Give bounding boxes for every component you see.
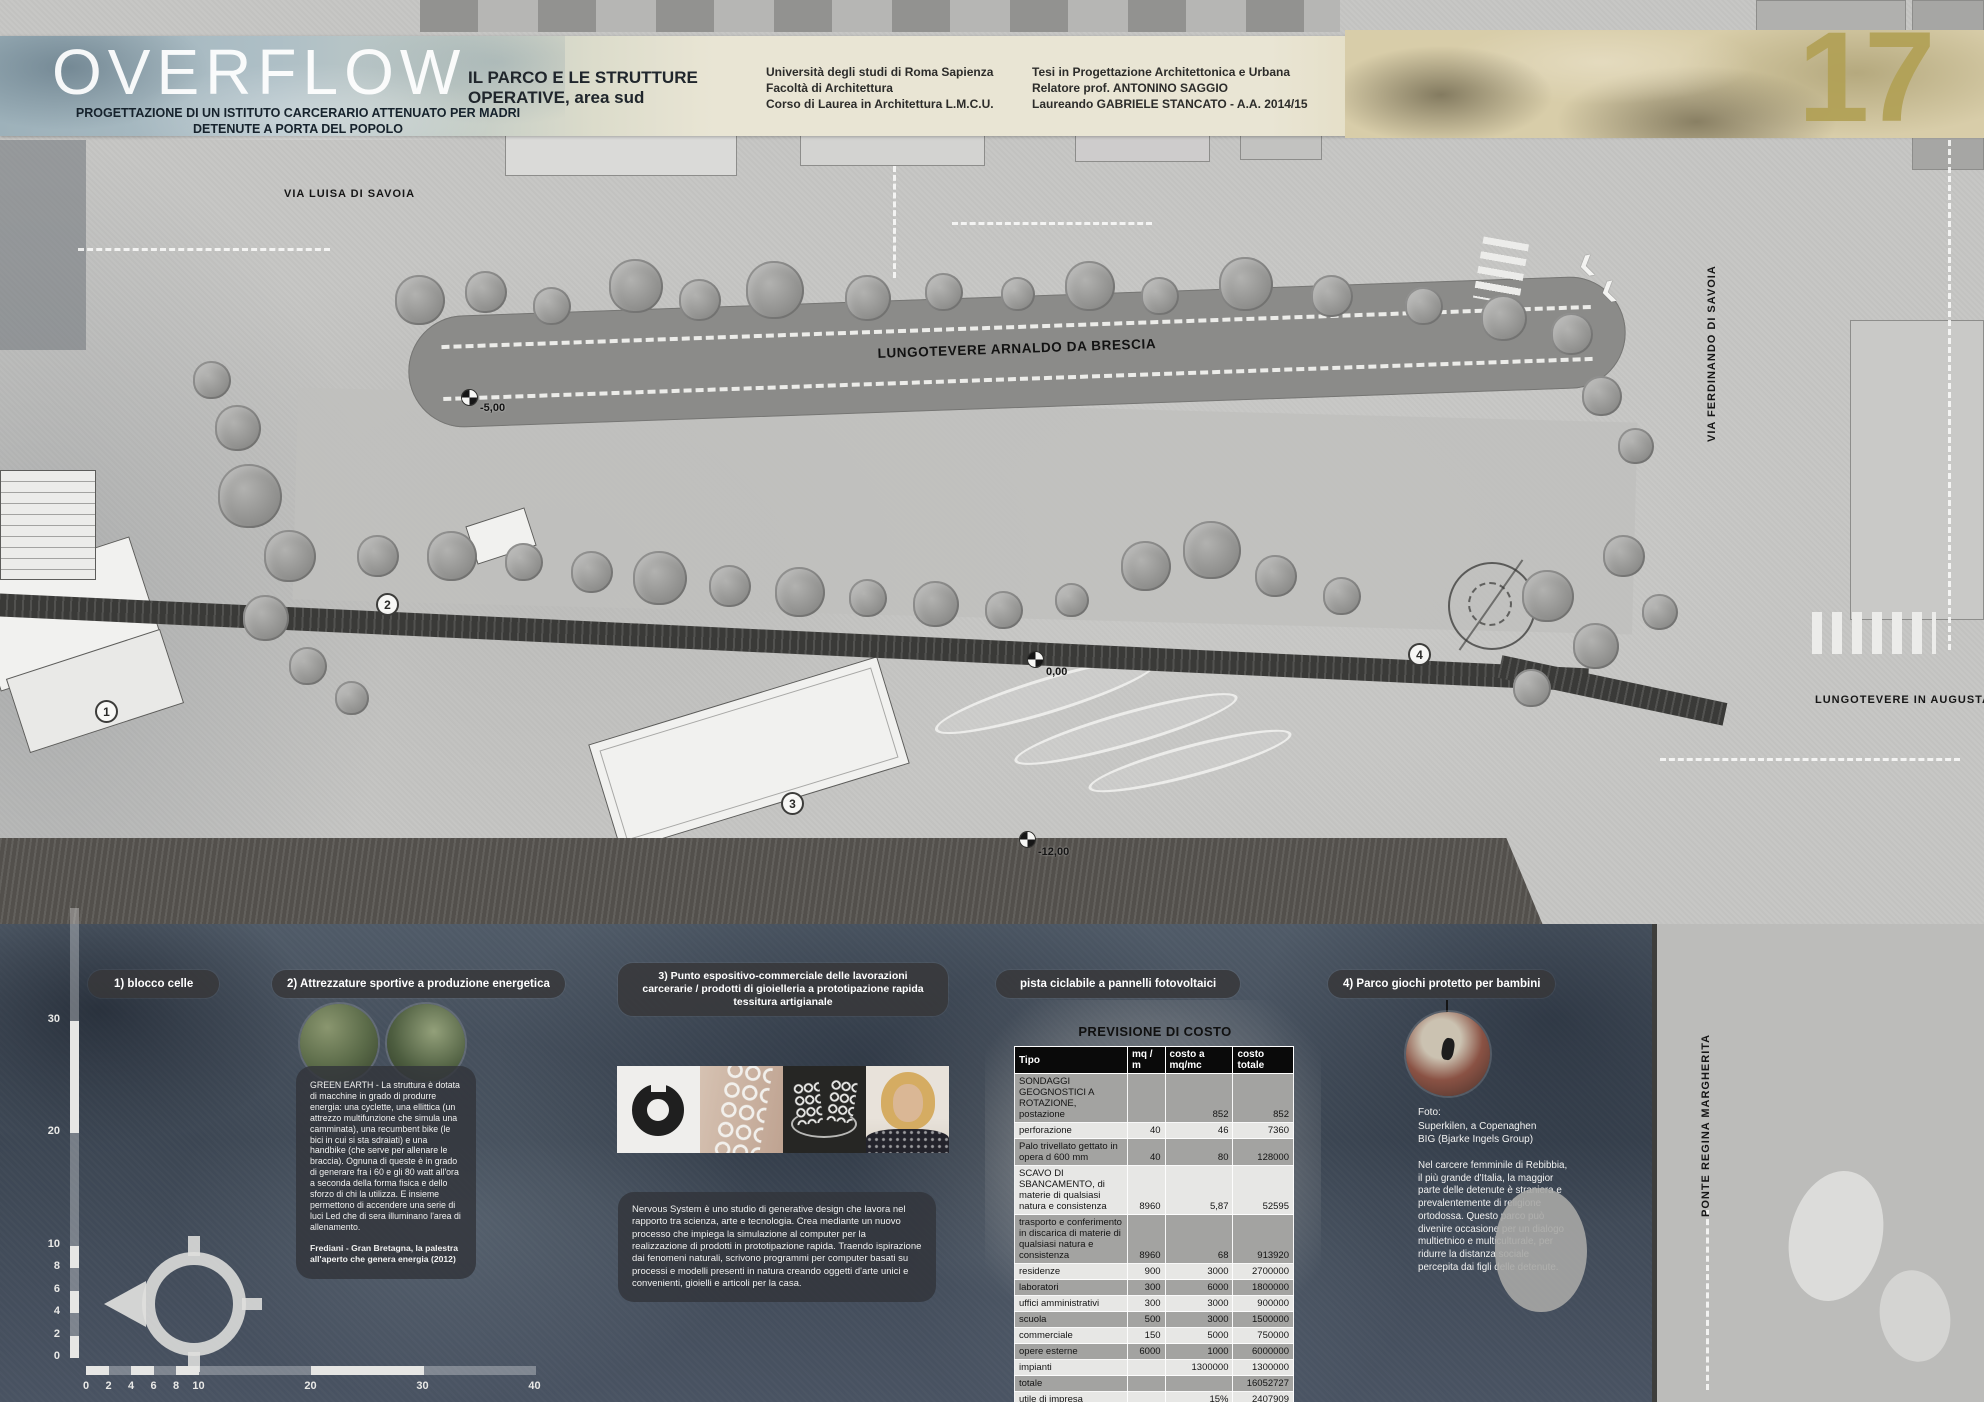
cost-table-cell: 6000 xyxy=(1165,1280,1233,1296)
scale-bar-segment xyxy=(424,1366,537,1375)
cost-table-cell: 40 xyxy=(1128,1123,1166,1139)
university-credits: Università degli studi di Roma Sapienza … xyxy=(766,64,994,113)
lane-marking xyxy=(1706,1210,1709,1390)
street-label-ponte-regina: PONTE REGINA MARGHERITA xyxy=(1700,1002,1712,1217)
cost-table-row: SONDAGGI GEOGNOSTICI A ROTAZIONE, postaz… xyxy=(1015,1074,1294,1123)
tree xyxy=(633,551,687,605)
lane-marking xyxy=(893,166,896,278)
plan-number-marker: 1 xyxy=(95,700,118,723)
cost-table-cell: uffici amministrativi xyxy=(1015,1296,1128,1312)
tree xyxy=(1522,570,1574,622)
tree xyxy=(849,579,887,617)
photo-credit-line: Foto: xyxy=(1418,1106,1536,1120)
cost-table-cell xyxy=(1165,1376,1233,1392)
cost-table-cell: 6000 xyxy=(1128,1344,1166,1360)
tree xyxy=(985,591,1023,629)
cost-table-cell: 300 xyxy=(1128,1280,1166,1296)
scale-bar-segment xyxy=(70,1291,79,1314)
cost-table-cell: SCAVO DI SBANCAMENTO, di materie di qual… xyxy=(1015,1166,1128,1215)
plan-number-marker: 4 xyxy=(1408,643,1431,666)
cost-table-cell: 5,87 xyxy=(1165,1166,1233,1215)
board-title: OVERFLOW xyxy=(52,40,466,104)
lane-marking xyxy=(1660,758,1960,761)
portrait-face xyxy=(893,1084,923,1122)
tree xyxy=(1513,669,1551,707)
cost-table-column-header: costo a mq/mc xyxy=(1165,1047,1233,1074)
tree xyxy=(925,273,963,311)
tree xyxy=(913,581,959,627)
photo-credit: Foto: Superkilen, a Copenaghen BIG (Bjar… xyxy=(1418,1106,1536,1147)
green-earth-credit: Frediani - Gran Bretagna, la palestra al… xyxy=(310,1243,462,1265)
cost-table-cell: 1000 xyxy=(1165,1344,1233,1360)
university-line: Università degli studi di Roma Sapienza xyxy=(766,64,994,80)
tree xyxy=(1001,277,1035,311)
cost-table-column-header: mq / m xyxy=(1128,1047,1166,1074)
scale-bar-segment xyxy=(176,1366,199,1375)
photo-silver-cuffs xyxy=(783,1066,866,1153)
scale-bar-segment xyxy=(154,1366,177,1375)
scale-bar-segment xyxy=(70,1021,79,1134)
elevation-marker-icon xyxy=(1028,652,1043,667)
cost-table-cell: 3000 xyxy=(1165,1296,1233,1312)
elevation-label: -12,00 xyxy=(1038,846,1069,858)
stairs xyxy=(0,470,96,580)
section-title-line1: IL PARCO E LE STRUTTURE xyxy=(468,68,698,88)
elevation-marker-icon xyxy=(462,390,477,405)
tree xyxy=(335,681,369,715)
thesis-line: Tesi in Progettazione Architettonica e U… xyxy=(1032,64,1308,80)
crosswalk xyxy=(1812,612,1936,654)
cost-table-row: SCAVO DI SBANCAMENTO, di materie di qual… xyxy=(1015,1166,1294,1215)
scale-label-v: 0 xyxy=(54,1350,60,1362)
cost-table-row: Palo trivellato gettato in opera d 600 m… xyxy=(1015,1139,1294,1166)
cost-table-row: scuola50030001500000 xyxy=(1015,1312,1294,1328)
photo-white-bracelet xyxy=(700,1066,783,1153)
cost-table-cell: 3000 xyxy=(1165,1312,1233,1328)
portrait-collar xyxy=(866,1129,949,1153)
scale-label-v: 2 xyxy=(54,1328,60,1340)
scale-bar-segment xyxy=(70,1268,79,1291)
cost-table-cell: 750000 xyxy=(1233,1328,1294,1344)
cost-table-cell: 8960 xyxy=(1128,1166,1166,1215)
cost-table-cell: totale xyxy=(1015,1376,1128,1392)
tree xyxy=(1121,541,1171,591)
cost-table-cell: perforazione xyxy=(1015,1123,1128,1139)
tree xyxy=(289,647,327,685)
thesis-line: Relatore prof. ANTONINO SAGGIO xyxy=(1032,80,1308,96)
scale-label-v: 20 xyxy=(48,1125,60,1137)
nervous-system-panel: Nervous System è uno studio di generativ… xyxy=(618,1192,936,1302)
cost-table-cell: 852 xyxy=(1233,1074,1294,1123)
photo-figure xyxy=(1440,1037,1456,1061)
compass-arrow-west xyxy=(104,1281,146,1327)
building-band xyxy=(0,838,1545,930)
university-line: Facoltà di Architettura xyxy=(766,80,994,96)
cost-table-row: residenze90030002700000 xyxy=(1015,1264,1294,1280)
cost-table-cell: 2407909 xyxy=(1233,1392,1294,1402)
scale-label-v: 30 xyxy=(48,1013,60,1025)
plan-number-marker: 2 xyxy=(376,593,399,616)
jewelry-photo-strip xyxy=(617,1066,949,1153)
tree xyxy=(1183,521,1241,579)
compass-tick-east xyxy=(242,1298,262,1310)
necklace-opening xyxy=(651,1076,666,1092)
cost-table-header-row: Tipomq / mcosto a mq/mccosto totale xyxy=(1015,1047,1294,1074)
tree xyxy=(1323,577,1361,615)
cost-table-cell: 852 xyxy=(1165,1074,1233,1123)
cost-table-cell: 1800000 xyxy=(1233,1280,1294,1296)
building xyxy=(0,140,86,350)
callout-pill-attrezzature: 2) Attrezzature sportive a produzione en… xyxy=(272,970,565,998)
tree xyxy=(264,530,316,582)
cost-table-row: commerciale1505000750000 xyxy=(1015,1328,1294,1344)
cost-table-cell: 128000 xyxy=(1233,1139,1294,1166)
scale-label-v: 8 xyxy=(54,1260,60,1272)
cost-table-cell: 3000 xyxy=(1165,1264,1233,1280)
photo-credit-line: Superkilen, a Copenaghen xyxy=(1418,1120,1536,1134)
tree xyxy=(1573,623,1619,669)
cost-table-row: utile di impresa15%2407909 xyxy=(1015,1392,1294,1402)
scale-label-h: 2 xyxy=(105,1380,111,1392)
lane-marking xyxy=(952,222,1152,225)
cost-table-cell: SONDAGGI GEOGNOSTICI A ROTAZIONE, postaz… xyxy=(1015,1074,1128,1123)
cost-table: Tipomq / mcosto a mq/mccosto totale SOND… xyxy=(1014,1046,1294,1402)
cost-table-column-header: costo totale xyxy=(1233,1047,1294,1074)
cost-table-cell: 900000 xyxy=(1233,1296,1294,1312)
cost-table-cell: 500 xyxy=(1128,1312,1166,1328)
cost-table-row: trasporto e conferimento in discarica di… xyxy=(1015,1215,1294,1264)
tree xyxy=(1603,535,1645,577)
tree xyxy=(427,531,477,581)
scale-label-v: 6 xyxy=(54,1283,60,1295)
cost-table-cell: 16052727 xyxy=(1233,1376,1294,1392)
scale-label-h: 20 xyxy=(304,1380,316,1392)
cost-table-cell: commerciale xyxy=(1015,1328,1128,1344)
cost-table-cell xyxy=(1128,1392,1166,1402)
cost-table-cell xyxy=(1128,1376,1166,1392)
tree xyxy=(1055,583,1089,617)
cost-table-cell: 5000 xyxy=(1165,1328,1233,1344)
tree xyxy=(505,543,543,581)
cost-table-cell: trasporto e conferimento in discarica di… xyxy=(1015,1215,1128,1264)
photo-superkilen xyxy=(1406,1012,1490,1096)
tree xyxy=(1551,313,1593,355)
cost-table-cell: 6000000 xyxy=(1233,1344,1294,1360)
tree xyxy=(1405,287,1443,325)
bracelet-mesh xyxy=(713,1066,773,1153)
tree xyxy=(571,551,613,593)
cost-table-cell: 1500000 xyxy=(1233,1312,1294,1328)
cost-table-cell: 15% xyxy=(1165,1392,1233,1402)
section-title: IL PARCO E LE STRUTTURE OPERATIVE, area … xyxy=(468,68,698,109)
tree xyxy=(395,275,445,325)
callout-pill-blocco-celle: 1) blocco celle xyxy=(88,970,219,998)
section-title-line2: OPERATIVE, area sud xyxy=(468,88,698,108)
tree xyxy=(357,535,399,577)
tree xyxy=(1618,428,1654,464)
callout-pill-pista-ciclabile: pista ciclabile a pannelli fotovoltaici xyxy=(996,970,1240,998)
cost-table-title: PREVISIONE DI COSTO xyxy=(1012,1024,1298,1039)
tree xyxy=(1255,555,1297,597)
top-wall xyxy=(420,0,1340,32)
scale-label-h: 40 xyxy=(528,1380,540,1392)
cost-table-row: laboratori30060001800000 xyxy=(1015,1280,1294,1296)
compass-tick-north xyxy=(188,1236,200,1256)
tree xyxy=(1141,277,1179,315)
scale-label-h: 30 xyxy=(416,1380,428,1392)
elevation-label: -5,00 xyxy=(480,402,505,414)
cuff-band xyxy=(791,1110,857,1138)
tree xyxy=(1065,261,1115,311)
callout-pill-punto-espositivo: 3) Punto espositivo-commerciale delle la… xyxy=(618,963,948,1016)
tree xyxy=(746,261,804,319)
cost-table-cell: 40 xyxy=(1128,1139,1166,1166)
cost-table-cell: 2700000 xyxy=(1233,1264,1294,1280)
cost-table-row: uffici amministrativi3003000900000 xyxy=(1015,1296,1294,1312)
tree xyxy=(1481,295,1527,341)
board-subtitle: PROGETTAZIONE DI UN ISTITUTO CARCERARIO … xyxy=(58,106,538,137)
photo-credit-line: BIG (Bjarke Ingels Group) xyxy=(1418,1133,1536,1147)
tree xyxy=(533,287,571,325)
lane-marking xyxy=(78,248,330,251)
cost-table-cell: 1300000 xyxy=(1165,1360,1233,1376)
tree xyxy=(215,405,261,451)
scale-bar-segment xyxy=(311,1366,424,1375)
scale-label-h: 6 xyxy=(150,1380,156,1392)
scale-label-h: 4 xyxy=(128,1380,134,1392)
cost-table-cell: opere esterne xyxy=(1015,1344,1128,1360)
tree xyxy=(775,567,825,617)
scale-bar-segment xyxy=(70,1246,79,1269)
plan-fragment xyxy=(1495,1188,1587,1312)
scale-bar-segment xyxy=(70,1336,79,1359)
cost-table-cell xyxy=(1128,1074,1166,1123)
cost-table-row: perforazione40467360 xyxy=(1015,1123,1294,1139)
scale-label-h: 10 xyxy=(192,1380,204,1392)
cost-table-cell: 913920 xyxy=(1233,1215,1294,1264)
cost-table-cell: 68 xyxy=(1165,1215,1233,1264)
page-number: 17 xyxy=(1798,14,1930,142)
scale-bar-segment xyxy=(70,1133,79,1246)
scale-label-h: 8 xyxy=(173,1380,179,1392)
cost-table-cell: residenze xyxy=(1015,1264,1128,1280)
cost-table-cell: utile di impresa xyxy=(1015,1392,1128,1402)
callout-pill-parco-giochi: 4) Parco giochi protetto per bambini xyxy=(1328,970,1555,998)
cost-table-cell: 8960 xyxy=(1128,1215,1166,1264)
tree xyxy=(1311,275,1353,317)
scale-bar-segment xyxy=(70,908,79,1021)
cost-table-cell: 1300000 xyxy=(1233,1360,1294,1376)
cost-table-cell: 80 xyxy=(1165,1139,1233,1166)
thesis-credits: Tesi in Progettazione Architettonica e U… xyxy=(1032,64,1308,113)
photo-black-necklace xyxy=(617,1066,700,1153)
tree xyxy=(243,595,289,641)
cost-table-cell: 300 xyxy=(1128,1296,1166,1312)
cost-table-cell: scuola xyxy=(1015,1312,1128,1328)
building xyxy=(1850,320,1984,620)
scale-bar-segment xyxy=(131,1366,154,1375)
scale-label-h: 0 xyxy=(83,1380,89,1392)
cost-table-cell: Palo trivellato gettato in opera d 600 m… xyxy=(1015,1139,1128,1166)
thesis-line: Laureando GABRIELE STANCATO - A.A. 2014/… xyxy=(1032,96,1308,112)
tree xyxy=(845,275,891,321)
north-compass-icon xyxy=(142,1252,246,1356)
cost-table-cell: laboratori xyxy=(1015,1280,1128,1296)
tree xyxy=(679,279,721,321)
elevation-label: 0,00 xyxy=(1046,666,1067,678)
street-label-lungotevere-augusta: LUNGOTEVERE IN AUGUSTA xyxy=(1815,694,1984,706)
lane-marking xyxy=(1948,140,1951,650)
plan-number-marker: 3 xyxy=(781,792,804,815)
presentation-board: LUNGOTEVERE ARNALDO DA BRESCIA ❮ ❮ VIA L… xyxy=(0,0,1984,1402)
cost-table-row: impianti13000001300000 xyxy=(1015,1360,1294,1376)
university-line: Corso di Laurea in Architettura L.M.C.U. xyxy=(766,96,994,112)
cost-table-cell: 52595 xyxy=(1233,1166,1294,1215)
cost-table-cell: 46 xyxy=(1165,1123,1233,1139)
tree xyxy=(193,361,231,399)
scale-bar-segment xyxy=(86,1366,109,1375)
cost-table-cell xyxy=(1128,1360,1166,1376)
tree xyxy=(709,565,751,607)
cost-table-cell: 150 xyxy=(1128,1328,1166,1344)
tree xyxy=(465,271,507,313)
cost-table-row: totale16052727 xyxy=(1015,1376,1294,1392)
street-label-via-luisa: VIA LUISA DI SAVOIA xyxy=(284,188,415,200)
elevation-marker-icon xyxy=(1020,832,1035,847)
tree xyxy=(1219,257,1273,311)
cost-table-column-header: Tipo xyxy=(1015,1047,1128,1074)
nervous-system-text: Nervous System è uno studio di generativ… xyxy=(632,1204,922,1290)
green-earth-text: GREEN EARTH - La struttura è dotata di m… xyxy=(310,1080,462,1233)
street-label-via-ferdinando: VIA FERDINANDO DI SAVOIA xyxy=(1706,232,1718,442)
cost-table-cell: impianti xyxy=(1015,1360,1128,1376)
scale-label-v: 10 xyxy=(48,1238,60,1250)
tree xyxy=(609,259,663,313)
cost-table-cell: 900 xyxy=(1128,1264,1166,1280)
cost-table-row: opere esterne600010006000000 xyxy=(1015,1344,1294,1360)
tree xyxy=(218,464,282,528)
photo-model-portrait xyxy=(866,1066,949,1153)
scale-bar-segment xyxy=(70,1313,79,1336)
scale-bar-segment xyxy=(109,1366,132,1375)
cost-table-cell: 7360 xyxy=(1233,1123,1294,1139)
tree xyxy=(1642,594,1678,630)
tree xyxy=(1582,376,1622,416)
green-earth-panel: GREEN EARTH - La struttura è dotata di m… xyxy=(296,1066,476,1279)
scale-label-v: 4 xyxy=(54,1305,60,1317)
scale-bar-segment xyxy=(199,1366,312,1375)
